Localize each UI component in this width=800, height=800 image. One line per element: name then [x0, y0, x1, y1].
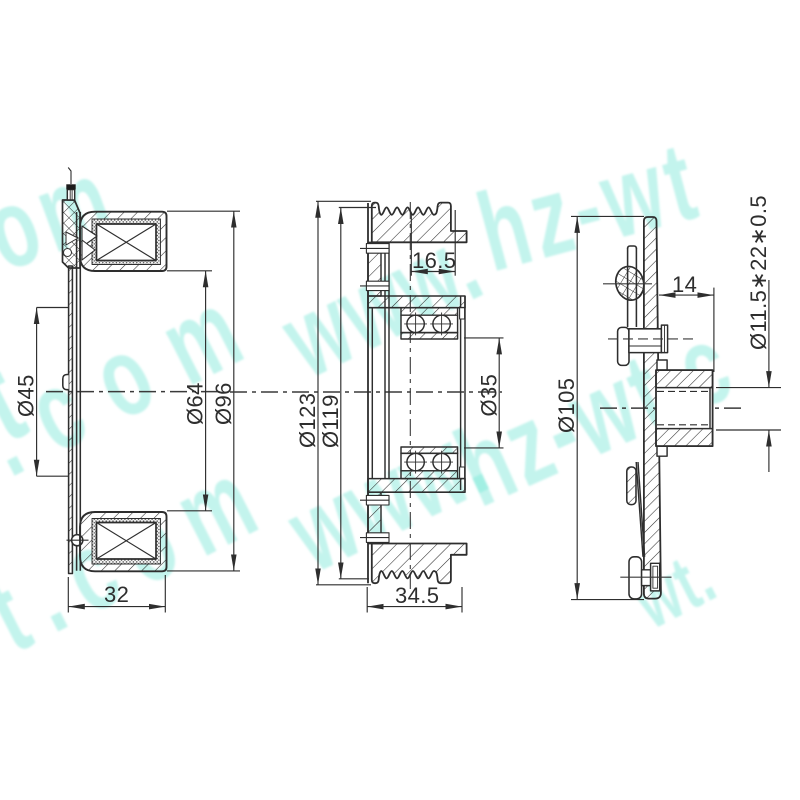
svg-text:Ø119: Ø119 [318, 394, 343, 448]
svg-text:14: 14 [672, 272, 697, 297]
svg-text:Ø45: Ø45 [14, 374, 39, 417]
svg-text:Ø64: Ø64 [183, 382, 208, 425]
svg-text:16.5: 16.5 [412, 248, 456, 273]
svg-text:32: 32 [104, 582, 129, 607]
svg-text:Ø11.5∗22∗0.5: Ø11.5∗22∗0.5 [746, 195, 771, 350]
svg-text:Ø96: Ø96 [211, 382, 236, 425]
svg-text:Ø35: Ø35 [477, 374, 502, 417]
svg-text:34.5: 34.5 [395, 583, 439, 608]
svg-text:Ø105: Ø105 [554, 378, 579, 433]
svg-text:Ø123: Ø123 [295, 393, 320, 448]
